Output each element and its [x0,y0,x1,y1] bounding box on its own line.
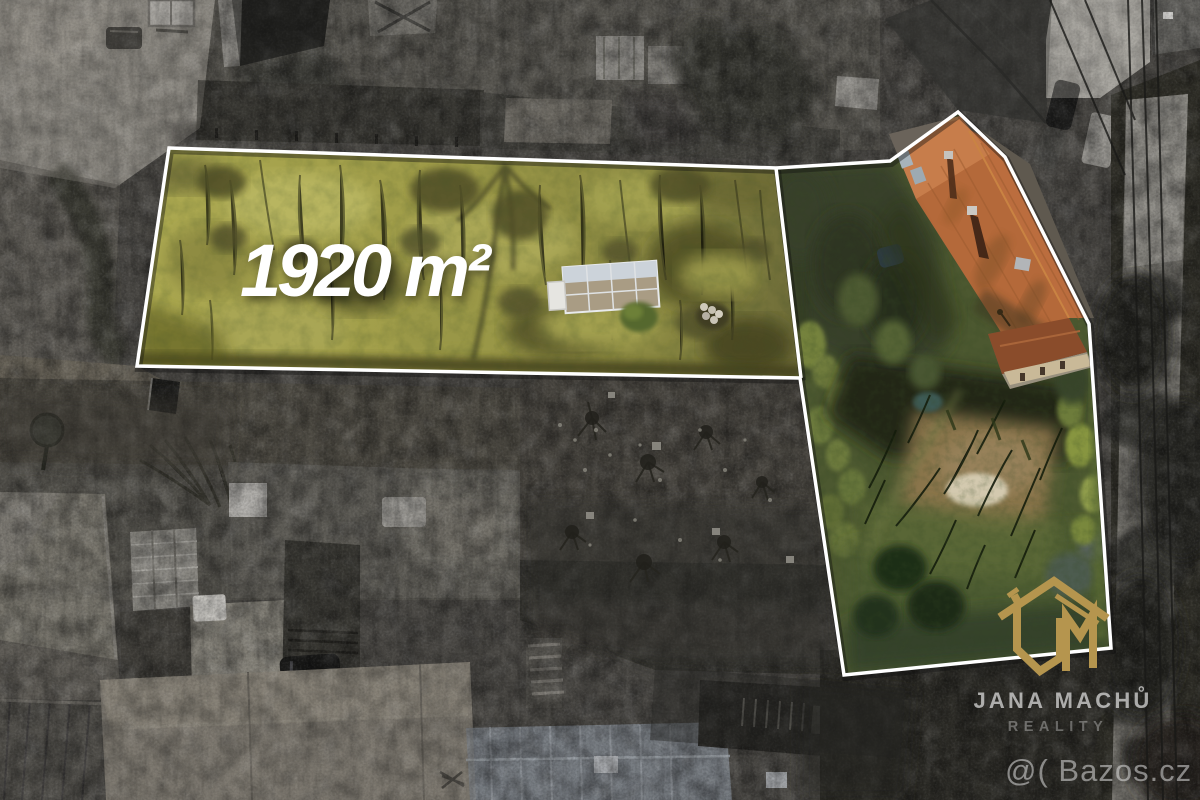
svg-text:REALITY: REALITY [1008,719,1109,735]
svg-text:1920 m²: 1920 m² [240,229,493,312]
svg-text:@( Bazos.cz: @( Bazos.cz [1005,753,1192,788]
svg-text:JANA MACHŮ: JANA MACHŮ [973,685,1152,713]
